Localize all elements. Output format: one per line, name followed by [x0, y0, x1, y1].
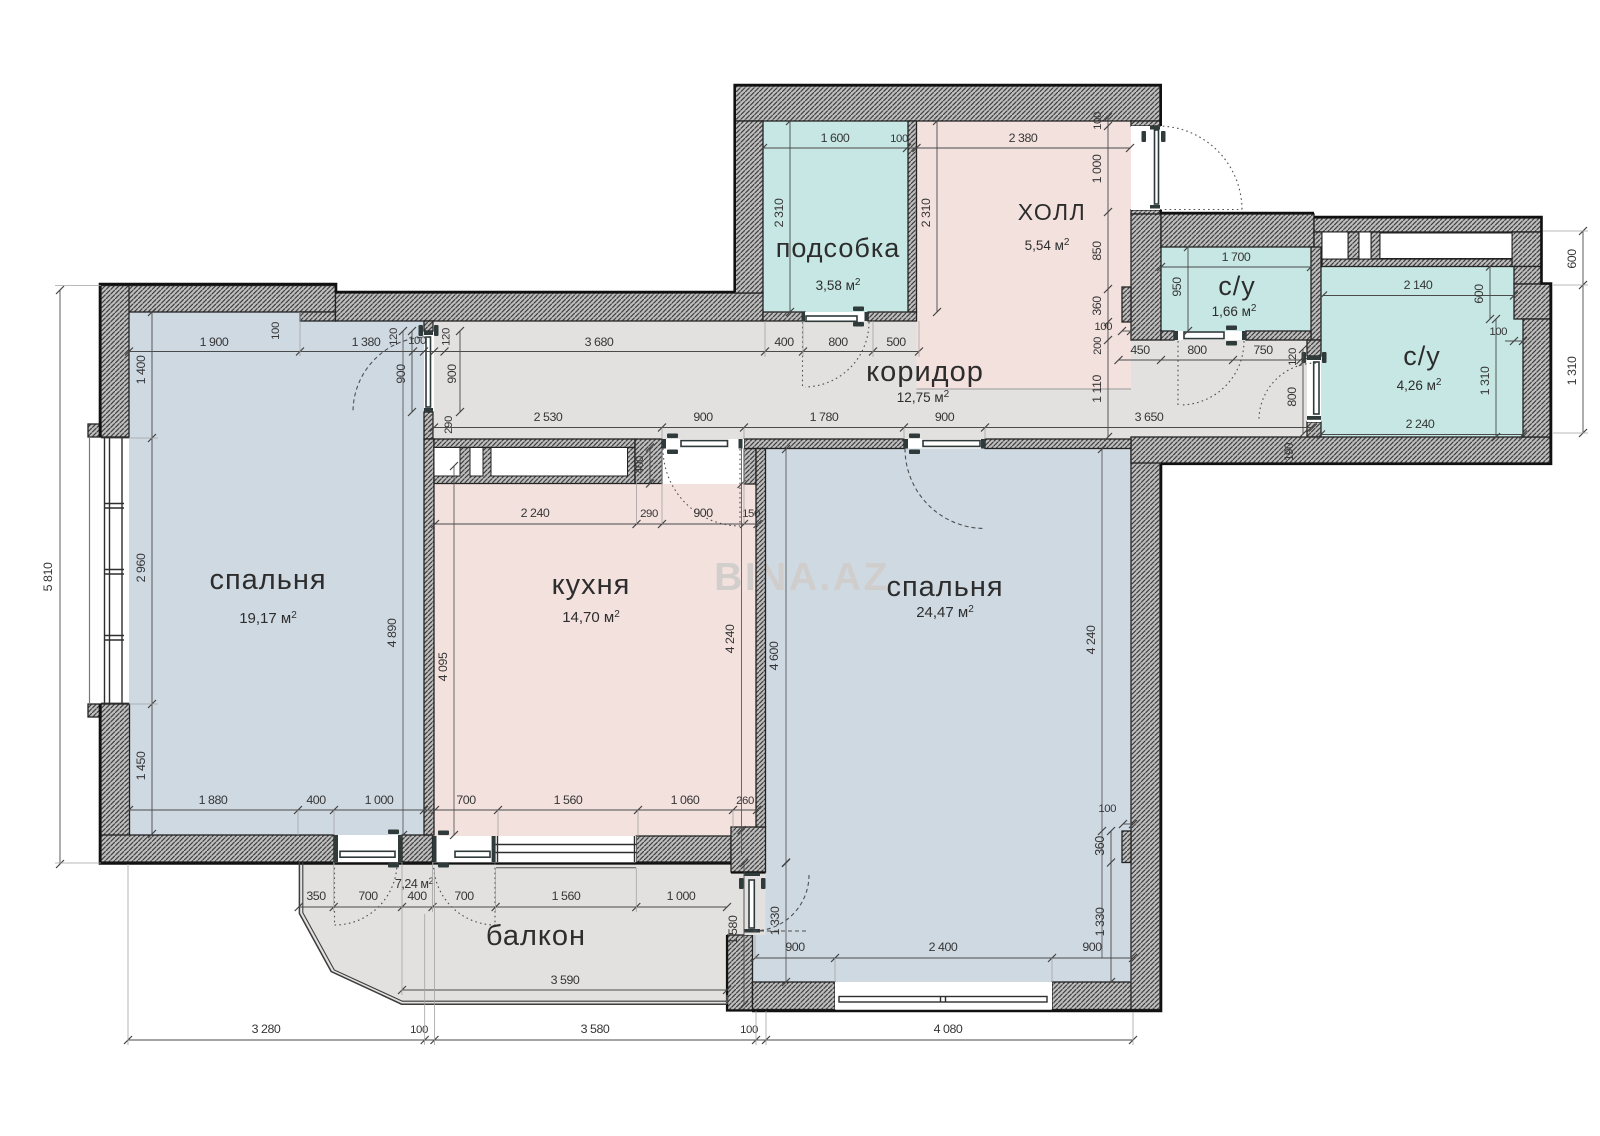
svg-text:400: 400 — [634, 456, 646, 474]
svg-text:1 000: 1 000 — [667, 889, 696, 903]
svg-text:700: 700 — [454, 889, 474, 903]
svg-text:14,70 м2: 14,70 м2 — [562, 609, 620, 626]
svg-text:2 960: 2 960 — [134, 553, 148, 582]
svg-text:100: 100 — [740, 1024, 758, 1036]
svg-text:100: 100 — [408, 335, 426, 347]
svg-text:600: 600 — [1565, 249, 1579, 269]
svg-text:290: 290 — [640, 508, 658, 520]
svg-text:1 380: 1 380 — [352, 335, 381, 349]
svg-text:3 680: 3 680 — [585, 335, 614, 349]
svg-text:100: 100 — [1098, 803, 1116, 815]
svg-text:1 780: 1 780 — [810, 410, 839, 424]
svg-text:коридор: коридор — [866, 356, 984, 388]
svg-text:12,75 м2: 12,75 м2 — [897, 389, 950, 405]
svg-text:360: 360 — [1093, 836, 1107, 856]
svg-text:400: 400 — [306, 793, 326, 807]
svg-text:4,26 м2: 4,26 м2 — [1397, 377, 1442, 393]
svg-text:3 280: 3 280 — [252, 1022, 281, 1036]
svg-text:850: 850 — [1090, 241, 1104, 261]
svg-text:4 080: 4 080 — [934, 1022, 963, 1036]
svg-text:120: 120 — [441, 328, 453, 346]
svg-text:900: 900 — [394, 364, 408, 384]
svg-text:кухня: кухня — [552, 569, 631, 601]
svg-text:1 000: 1 000 — [365, 793, 394, 807]
svg-text:19,17 м2: 19,17 м2 — [239, 610, 297, 627]
svg-text:с/у: с/у — [1403, 341, 1441, 371]
svg-text:1 000: 1 000 — [1090, 154, 1104, 183]
svg-text:1 060: 1 060 — [671, 793, 700, 807]
svg-text:1 600: 1 600 — [821, 131, 850, 145]
svg-text:спальня: спальня — [886, 571, 1003, 603]
svg-text:24,47 м2: 24,47 м2 — [916, 604, 974, 621]
svg-text:спальня: спальня — [209, 564, 326, 596]
svg-text:1 330: 1 330 — [1093, 907, 1107, 936]
svg-text:5,54 м2: 5,54 м2 — [1025, 237, 1070, 253]
svg-text:4 240: 4 240 — [723, 624, 737, 653]
svg-text:4 240: 4 240 — [1084, 625, 1098, 654]
svg-text:900: 900 — [693, 506, 713, 520]
svg-text:800: 800 — [1187, 343, 1207, 357]
svg-text:4 095: 4 095 — [436, 652, 450, 681]
svg-text:290: 290 — [443, 416, 455, 434]
svg-text:800: 800 — [828, 335, 848, 349]
svg-text:400: 400 — [774, 335, 794, 349]
svg-text:120: 120 — [388, 328, 400, 346]
svg-text:100: 100 — [890, 133, 908, 145]
svg-text:100: 100 — [1092, 112, 1104, 130]
svg-text:7,24 м2: 7,24 м2 — [395, 876, 434, 891]
svg-text:4 890: 4 890 — [385, 618, 399, 647]
svg-text:2 400: 2 400 — [929, 940, 958, 954]
svg-text:1 900: 1 900 — [200, 335, 229, 349]
svg-text:1,66 м2: 1,66 м2 — [1212, 303, 1257, 319]
svg-text:700: 700 — [456, 793, 476, 807]
svg-text:ХОЛЛ: ХОЛЛ — [1018, 199, 1086, 225]
svg-text:1 110: 1 110 — [1090, 375, 1104, 403]
svg-text:1 310: 1 310 — [1478, 366, 1492, 395]
svg-text:3 590: 3 590 — [551, 973, 580, 987]
svg-text:1 330: 1 330 — [768, 906, 782, 935]
svg-text:190: 190 — [1284, 443, 1296, 461]
svg-text:подсобка: подсобка — [776, 233, 901, 263]
svg-text:700: 700 — [358, 889, 378, 903]
svg-text:360: 360 — [1090, 296, 1104, 316]
svg-text:балкон: балкон — [486, 920, 586, 952]
svg-text:1 560: 1 560 — [554, 793, 583, 807]
svg-text:2 530: 2 530 — [534, 410, 563, 424]
svg-text:100: 100 — [410, 1024, 428, 1036]
svg-text:с/у: с/у — [1218, 271, 1256, 301]
svg-text:100: 100 — [1094, 321, 1112, 333]
svg-text:120: 120 — [1287, 348, 1299, 366]
svg-text:1 560: 1 560 — [552, 889, 581, 903]
svg-text:3 650: 3 650 — [1135, 410, 1164, 424]
svg-text:1 580: 1 580 — [726, 915, 740, 944]
svg-text:350: 350 — [306, 889, 326, 903]
svg-text:1 310: 1 310 — [1565, 356, 1579, 385]
svg-text:3 580: 3 580 — [581, 1022, 610, 1036]
svg-text:950: 950 — [1170, 277, 1184, 297]
svg-text:900: 900 — [1082, 940, 1102, 954]
svg-text:100: 100 — [1489, 326, 1507, 338]
svg-text:2 240: 2 240 — [521, 506, 550, 520]
svg-text:150: 150 — [742, 508, 760, 520]
svg-text:900: 900 — [785, 940, 805, 954]
svg-text:2 240: 2 240 — [1406, 417, 1435, 431]
svg-text:BINA.AZ: BINA.AZ — [714, 556, 890, 599]
svg-text:100: 100 — [270, 322, 282, 340]
svg-text:900: 900 — [445, 364, 459, 384]
svg-text:2 310: 2 310 — [772, 198, 786, 227]
svg-text:800: 800 — [1285, 387, 1299, 407]
svg-text:900: 900 — [693, 410, 713, 424]
svg-text:900: 900 — [935, 410, 955, 424]
svg-text:400: 400 — [407, 889, 427, 903]
svg-text:5 810: 5 810 — [41, 562, 55, 591]
svg-text:1 700: 1 700 — [1222, 250, 1251, 264]
svg-text:750: 750 — [1253, 343, 1273, 357]
svg-text:1 400: 1 400 — [134, 355, 148, 384]
svg-text:200: 200 — [1092, 337, 1104, 355]
svg-text:1 880: 1 880 — [199, 793, 228, 807]
svg-text:600: 600 — [1472, 284, 1486, 304]
svg-text:260: 260 — [736, 795, 754, 807]
svg-text:2 310: 2 310 — [919, 198, 933, 227]
svg-text:500: 500 — [886, 335, 906, 349]
svg-text:450: 450 — [1130, 343, 1150, 357]
svg-text:1 450: 1 450 — [134, 751, 148, 780]
svg-text:2 380: 2 380 — [1009, 131, 1038, 145]
svg-text:4 600: 4 600 — [767, 641, 781, 670]
svg-text:2 140: 2 140 — [1404, 278, 1433, 292]
svg-text:3,58 м2: 3,58 м2 — [816, 277, 861, 293]
